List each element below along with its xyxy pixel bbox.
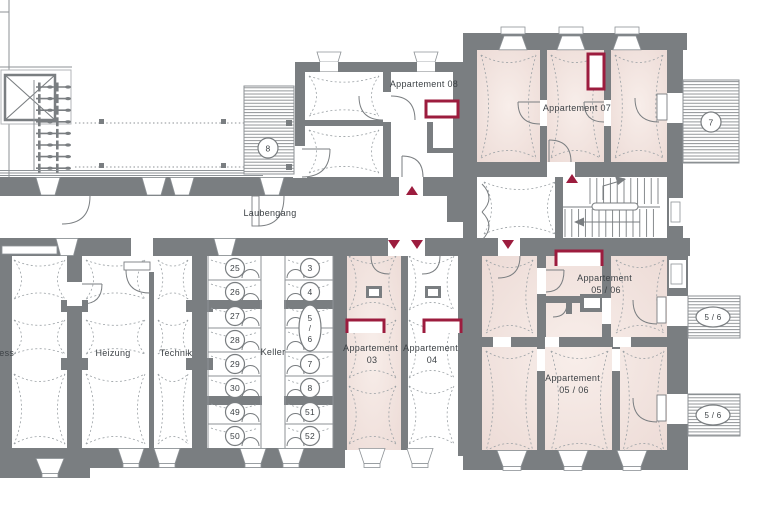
label-fitness: ness xyxy=(0,348,14,358)
label-laubengang: Laubengang xyxy=(243,208,296,218)
kitchen-unit-ap08 xyxy=(426,101,458,117)
keller-unit-3: 3 xyxy=(307,263,312,273)
keller-unit-51: 51 xyxy=(305,407,315,417)
badge-terrace-7: 7 xyxy=(708,118,713,128)
badge-terrace-56-upper: 5 / 6 xyxy=(704,313,721,322)
keller-unit-56-top: 5 xyxy=(308,314,313,323)
keller-unit-49: 49 xyxy=(230,407,240,417)
label-apartment-08: Appartement 08 xyxy=(390,79,458,89)
keller-unit-29: 29 xyxy=(230,359,240,369)
courtyard xyxy=(0,0,263,177)
floor-plan-drawing: Laubengang ness Heizung Technik Keller A… xyxy=(0,0,774,514)
staircase xyxy=(563,176,660,237)
label-technik: Technik xyxy=(160,348,193,358)
keller-unit-56-bottom: 6 xyxy=(308,335,313,344)
niche-ap0506 xyxy=(556,251,602,266)
keller-unit-50: 50 xyxy=(230,431,240,441)
label-apartment-07: Appartement 07 xyxy=(543,103,611,113)
terrace-8 xyxy=(244,86,294,174)
label-heizung: Heizung xyxy=(95,348,130,358)
floor-plan-page: Laubengang ness Heizung Technik Keller A… xyxy=(0,0,774,514)
badge-terrace-8: 8 xyxy=(265,144,270,154)
badge-terrace-56-lower: 5 / 6 xyxy=(704,411,721,420)
niche-ap03 xyxy=(347,320,384,333)
keller-unit-52: 52 xyxy=(305,431,315,441)
niche-ap04 xyxy=(424,320,461,333)
keller-unit-7: 7 xyxy=(307,359,312,369)
keller-unit-25: 25 xyxy=(230,263,240,273)
keller-unit-30: 30 xyxy=(230,383,240,393)
wardrobe-ap07 xyxy=(588,54,604,89)
keller-unit-27: 27 xyxy=(230,311,240,321)
keller-unit-8: 8 xyxy=(307,383,312,393)
label-keller: Keller xyxy=(261,347,286,357)
keller-unit-28: 28 xyxy=(230,335,240,345)
keller-unit-4: 4 xyxy=(307,287,312,297)
keller-unit-26: 26 xyxy=(230,287,240,297)
label-apartment-04: Appartement 04 xyxy=(403,343,461,365)
